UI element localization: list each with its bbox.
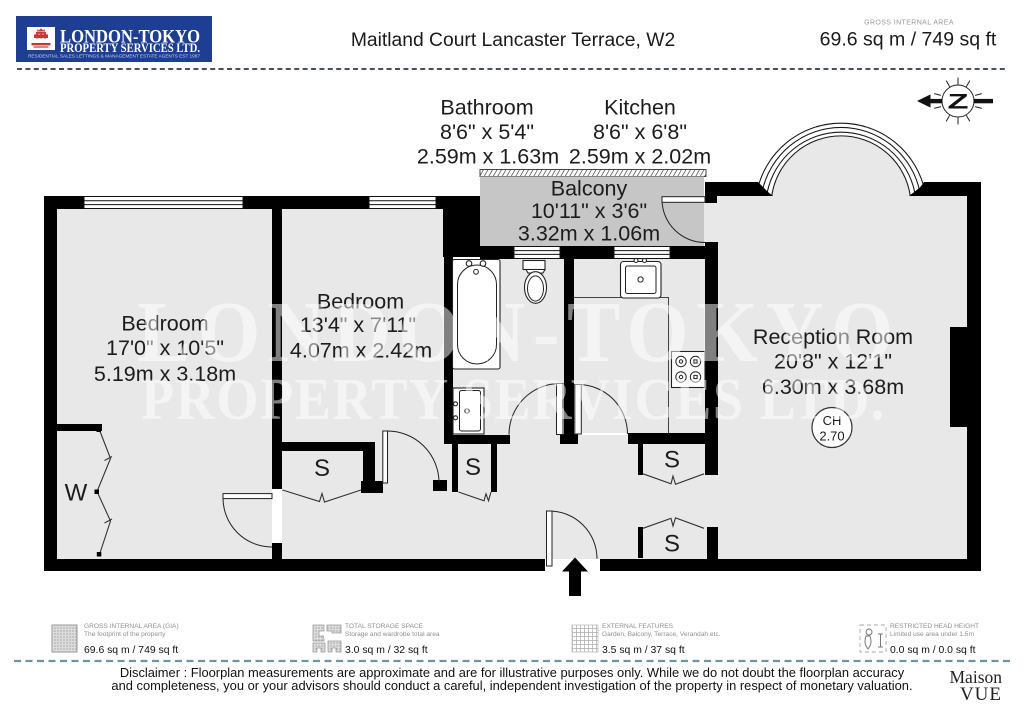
svg-text:8'6" x 5'4": 8'6" x 5'4" [440,120,534,144]
svg-text:8'6" x 6'8": 8'6" x 6'8" [593,120,687,144]
svg-text:PROPERTY SERVICES LTD.: PROPERTY SERVICES LTD. [141,367,884,433]
svg-text:S: S [465,454,481,481]
svg-text:10'11" x 3'6": 10'11" x 3'6" [531,199,647,223]
svg-text:RESTRICTED HEAD HEIGHT: RESTRICTED HEAD HEIGHT [890,623,979,630]
svg-text:S: S [664,447,680,474]
svg-text:2.59m x 1.63m: 2.59m x 1.63m [417,145,559,169]
svg-text:TOTAL STORAGE SPACE: TOTAL STORAGE SPACE [345,623,424,630]
svg-text:GROSS INTERNAL AREA: GROSS INTERNAL AREA [864,20,954,27]
svg-text:3.32m x 1.06m: 3.32m x 1.06m [518,222,660,246]
svg-text:VUE: VUE [960,684,1002,705]
svg-text:69.6 sq m / 749 sq ft: 69.6 sq m / 749 sq ft [820,29,997,51]
svg-text:EXTERNAL FEATURES: EXTERNAL FEATURES [602,623,674,630]
svg-text:Limited use area under 1.5m: Limited use area under 1.5m [890,631,974,638]
svg-text:PROPERTY SERVICES LTD.: PROPERTY SERVICES LTD. [60,41,200,55]
svg-text:RESIDENTIAL SALES LETTINGS & M: RESIDENTIAL SALES LETTINGS & MANAGEMENT … [28,54,200,60]
svg-text:S: S [664,531,680,558]
svg-text:The footprint of the property: The footprint of the property [84,631,166,638]
svg-text:and completeness, you or your: and completeness, you or your advisors s… [111,678,912,693]
svg-text:Bathroom: Bathroom [440,96,533,120]
svg-text:Maitland Court Lancaster Terra: Maitland Court Lancaster Terrace, W2 [351,30,675,51]
svg-text:Garden, Balcony, Terrace, Vera: Garden, Balcony, Terrace, Verandah etc. [602,631,721,638]
svg-text:2.59m x 2.02m: 2.59m x 2.02m [569,145,711,169]
svg-text:69.6 sq m / 749 sq ft: 69.6 sq m / 749 sq ft [84,645,178,656]
svg-text:3.5 sq m / 37 sq ft: 3.5 sq m / 37 sq ft [602,645,685,656]
svg-text:Storage and wardrobe total are: Storage and wardrobe total area [345,631,440,638]
svg-text:S: S [314,455,330,482]
svg-text:Kitchen: Kitchen [604,96,676,120]
svg-text:W: W [65,480,88,507]
svg-text:3.0 sq m / 32 sq ft: 3.0 sq m / 32 sq ft [345,645,428,656]
svg-text:Balcony: Balcony [551,177,628,201]
svg-text:Z: Z [948,91,969,114]
svg-text:0.0 sq m / 0.0 sq ft: 0.0 sq m / 0.0 sq ft [890,645,976,656]
svg-text:GROSS INTERNAL AREA (GIA): GROSS INTERNAL AREA (GIA) [84,623,179,630]
